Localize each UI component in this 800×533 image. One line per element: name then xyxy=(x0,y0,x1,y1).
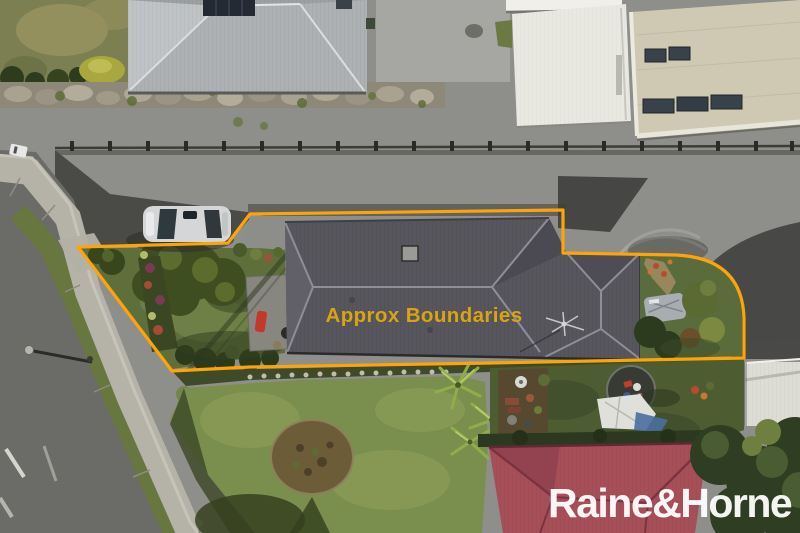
sunroof xyxy=(183,211,197,219)
circular-garden-bed xyxy=(271,420,353,494)
top-left-grass xyxy=(0,0,142,96)
top-middle-driveway xyxy=(376,0,512,82)
streetlight-head xyxy=(25,346,34,355)
wheelie-bin xyxy=(366,18,375,29)
approx-boundaries-label: Approx Boundaries xyxy=(325,304,522,327)
skylight xyxy=(402,246,418,261)
garden-pots-area xyxy=(498,368,550,436)
streetlight-pole xyxy=(87,356,93,362)
aerial-property-photo: Approx Boundaries Raine&Horne xyxy=(0,0,800,533)
agency-watermark: Raine&Horne xyxy=(548,480,792,526)
small-white-shed xyxy=(743,338,800,426)
photo-canvas: Approx Boundaries Raine&Horne xyxy=(0,0,800,533)
white-shed xyxy=(506,0,631,127)
neighbor-house-gray-roof xyxy=(128,0,375,93)
beige-warehouse xyxy=(631,0,800,140)
